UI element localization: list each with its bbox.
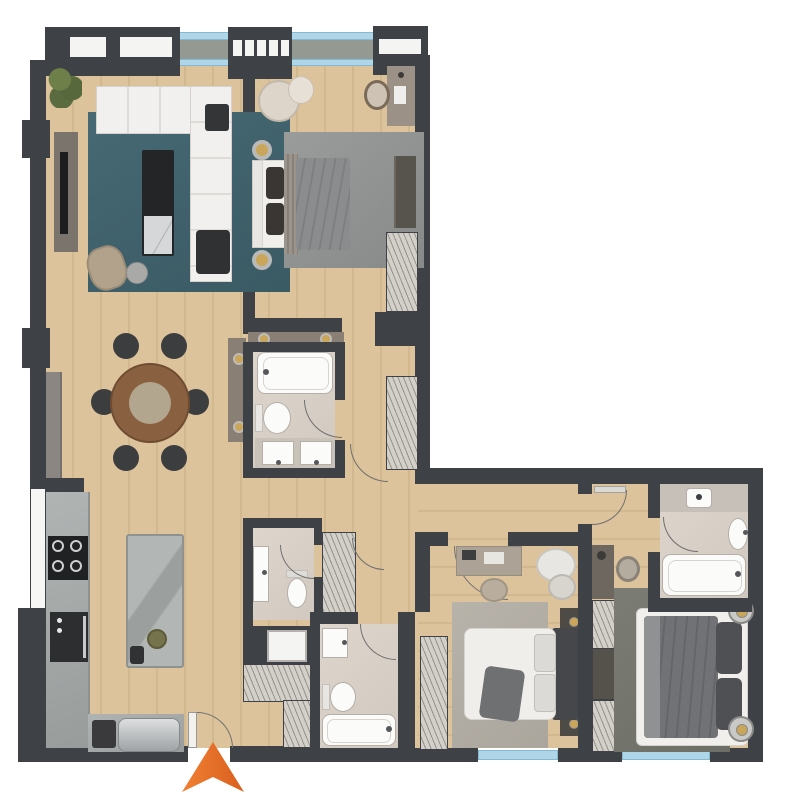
burner bbox=[70, 560, 82, 572]
master-bath-wall-left-upper bbox=[648, 484, 660, 518]
oven-handle bbox=[83, 616, 86, 658]
bedroom2-basket-small bbox=[548, 574, 576, 600]
burner bbox=[70, 540, 82, 552]
dining-chair bbox=[161, 445, 187, 471]
wc-washbasin bbox=[253, 546, 269, 602]
shoe-closet-top bbox=[243, 664, 311, 702]
floor-plan bbox=[0, 0, 800, 800]
entry-door-leaf bbox=[188, 712, 197, 748]
master-bath-wall-bottom bbox=[648, 598, 752, 612]
coffee-station bbox=[92, 720, 116, 748]
sofa-dark-cushion bbox=[205, 104, 229, 131]
shower-head-dot bbox=[696, 494, 702, 500]
oven-knob bbox=[57, 618, 62, 623]
master-pillow bbox=[716, 622, 742, 674]
master-divider-wall bbox=[578, 524, 592, 762]
bathroom1-wall-right-upper bbox=[335, 342, 345, 400]
island-bowl bbox=[147, 629, 167, 649]
tv-screen bbox=[60, 152, 68, 234]
bed1-wall-sconce bbox=[252, 140, 272, 160]
window-pane bbox=[379, 39, 421, 54]
bedroom2-wall-left-upper bbox=[415, 546, 430, 612]
bedroom1-wardrobe bbox=[386, 232, 418, 312]
bed2-throw-blanket bbox=[479, 665, 526, 722]
bathtub-inner bbox=[263, 357, 329, 390]
master-bed-throw bbox=[644, 616, 660, 738]
master-vanity-mirror bbox=[597, 551, 606, 560]
burner bbox=[52, 560, 64, 572]
toilet-tank bbox=[255, 404, 263, 432]
dining-chair bbox=[161, 333, 187, 359]
shoe-closet-side bbox=[283, 700, 311, 748]
hall-wall-left-of-door bbox=[415, 532, 448, 546]
bed1-wall-sconce bbox=[252, 250, 272, 270]
bathroom2-wall-right bbox=[398, 612, 415, 748]
bathroom1-wall-left bbox=[243, 342, 253, 478]
bed2-pillow bbox=[534, 674, 556, 712]
bed1-pillow bbox=[266, 167, 284, 199]
vanity-item bbox=[394, 86, 406, 104]
oven-knob bbox=[57, 628, 62, 633]
wc-basin-faucet bbox=[262, 570, 267, 575]
balcony-plant bbox=[48, 64, 82, 108]
wall-pillar bbox=[22, 120, 50, 158]
bedroom2-pouf bbox=[480, 578, 508, 602]
bathtub-faucet bbox=[263, 369, 269, 375]
bathroom2-basin-faucet bbox=[342, 640, 347, 645]
bedroom1-armchair-ottoman bbox=[288, 76, 314, 104]
wc-wall-left bbox=[243, 518, 253, 628]
window-pane bbox=[257, 40, 266, 56]
bathroom2-wall-left bbox=[310, 612, 320, 748]
vanity-mirror-dot bbox=[398, 72, 404, 78]
wall-right-wing-top bbox=[418, 468, 763, 484]
coffee-table-marble-tray bbox=[144, 216, 172, 254]
desk-item-light bbox=[484, 552, 504, 564]
wc-wall-right-upper bbox=[314, 518, 322, 545]
bathroom2-toilet bbox=[330, 682, 356, 712]
wc-wall-top bbox=[243, 518, 322, 528]
bathroom1-toilet bbox=[263, 402, 291, 434]
master-tub-faucet bbox=[735, 571, 741, 577]
bedroom2-window bbox=[478, 750, 558, 760]
window-pane bbox=[281, 40, 289, 56]
bedroom2-wardrobe bbox=[420, 636, 448, 750]
sofa-dark-blanket bbox=[196, 230, 230, 274]
window-pane bbox=[70, 37, 106, 57]
hall-wall-right-of-door bbox=[508, 532, 578, 546]
dining-chair bbox=[113, 445, 139, 471]
bathroom2-tub-inner bbox=[327, 719, 391, 743]
dining-chair bbox=[113, 333, 139, 359]
bathroom2-toilet-tank bbox=[322, 684, 330, 710]
sideboard bbox=[46, 372, 62, 478]
wall-pillar bbox=[22, 328, 50, 368]
bathroom1-wall-top bbox=[243, 342, 345, 352]
metallic-appliance bbox=[118, 718, 180, 752]
window-pane bbox=[120, 37, 172, 57]
wall-chunk-corridor bbox=[375, 312, 418, 346]
master-divider-stub bbox=[578, 484, 592, 494]
master-basin-faucet bbox=[743, 530, 748, 535]
sink-faucet bbox=[314, 460, 319, 465]
desk-item-dark bbox=[462, 550, 476, 560]
bedroom1-dresser bbox=[394, 156, 416, 228]
living-side-table bbox=[126, 262, 148, 284]
window-pane bbox=[269, 40, 278, 56]
bathroom2-wall-bottom bbox=[310, 748, 415, 762]
window-pane bbox=[245, 40, 254, 56]
sink-faucet bbox=[276, 460, 281, 465]
master-lamp-center bbox=[736, 724, 748, 736]
bathroom2-tub-faucet bbox=[386, 726, 392, 732]
master-tub-inner bbox=[668, 560, 742, 592]
kitchen-window bbox=[31, 486, 45, 612]
bedroom1-vanity-chair bbox=[364, 80, 390, 110]
washer bbox=[267, 630, 307, 662]
master-vanity-stool bbox=[616, 556, 640, 582]
corridor-wardrobe bbox=[386, 376, 418, 470]
bed1-duvet bbox=[296, 158, 350, 250]
wc-toilet bbox=[287, 578, 307, 608]
bed1-pillow bbox=[266, 203, 284, 235]
window-pane bbox=[233, 40, 242, 56]
island-kettle bbox=[130, 646, 144, 664]
wall-bottom-bedroom2-left bbox=[415, 748, 478, 762]
hall-closet-shelving bbox=[322, 532, 356, 622]
wall-bottom-mid bbox=[230, 746, 322, 762]
bed2-pillow bbox=[534, 634, 556, 672]
burner bbox=[52, 540, 64, 552]
bathroom1-wall-bottom bbox=[243, 468, 345, 478]
dining-table-center bbox=[129, 382, 171, 424]
